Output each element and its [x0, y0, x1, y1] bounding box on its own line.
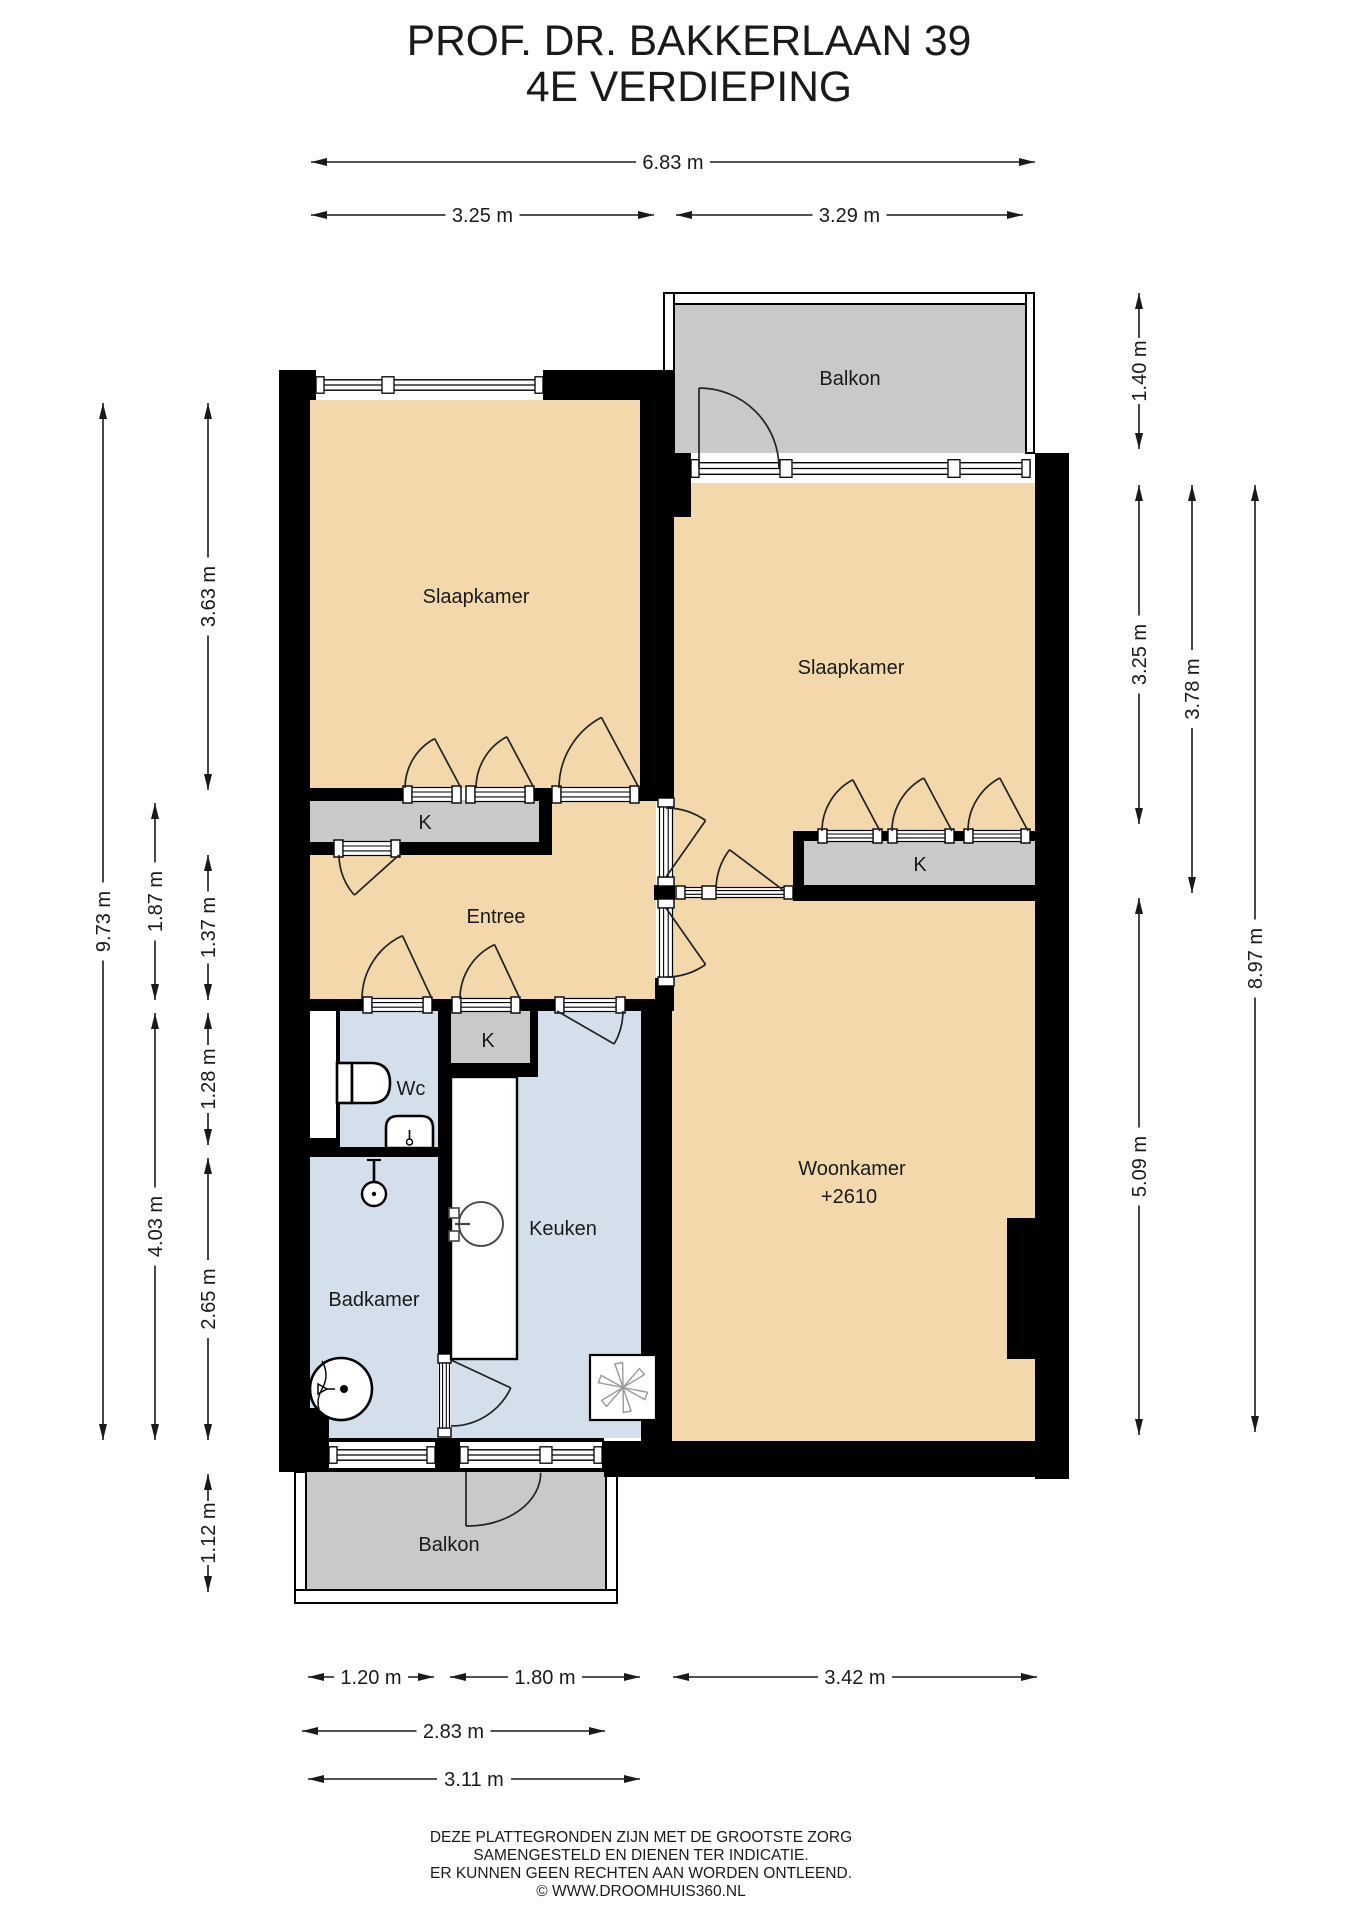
- svg-text:1.12 m: 1.12 m: [198, 1502, 220, 1563]
- svg-text:SAMENGESTELD EN DIENEN TER IND: SAMENGESTELD EN DIENEN TER INDICATIE.: [473, 1847, 808, 1864]
- svg-text:Entree: Entree: [467, 906, 526, 928]
- svg-text:Slaapkamer: Slaapkamer: [423, 586, 530, 608]
- svg-text:4.03 m: 4.03 m: [145, 1196, 167, 1257]
- svg-text:1.80 m: 1.80 m: [514, 1667, 575, 1689]
- svg-text:ER KUNNEN GEEN RECHTEN AAN WOR: ER KUNNEN GEEN RECHTEN AAN WORDEN ONTLEE…: [430, 1865, 852, 1882]
- svg-text:1.87 m: 1.87 m: [145, 871, 167, 932]
- svg-text:2.83 m: 2.83 m: [423, 1721, 484, 1743]
- svg-text:3.11 m: 3.11 m: [444, 1769, 504, 1791]
- svg-text:Badkamer: Badkamer: [328, 1289, 419, 1311]
- svg-text:4E VERDIEPING: 4E VERDIEPING: [526, 64, 852, 111]
- svg-text:6.83 m: 6.83 m: [642, 152, 703, 174]
- svg-text:K: K: [418, 812, 432, 834]
- svg-text:Wc: Wc: [397, 1078, 426, 1100]
- svg-text:3.63 m: 3.63 m: [198, 566, 220, 627]
- svg-text:K: K: [481, 1030, 495, 1052]
- svg-text:5.09 m: 5.09 m: [1129, 1136, 1151, 1197]
- svg-text:Balkon: Balkon: [819, 368, 880, 390]
- svg-text:Slaapkamer: Slaapkamer: [798, 657, 905, 679]
- svg-text:Keuken: Keuken: [529, 1218, 597, 1240]
- svg-text:Balkon: Balkon: [418, 1534, 479, 1556]
- svg-text:K: K: [913, 854, 927, 876]
- svg-text:+2610: +2610: [821, 1186, 877, 1208]
- svg-text:© WWW.DROOMHUIS360.NL: © WWW.DROOMHUIS360.NL: [536, 1883, 746, 1900]
- svg-text:3.25 m: 3.25 m: [1129, 624, 1151, 685]
- svg-text:PROF. DR. BAKKERLAAN 39: PROF. DR. BAKKERLAAN 39: [407, 18, 972, 65]
- svg-text:Woonkamer: Woonkamer: [798, 1158, 906, 1180]
- svg-text:1.28 m: 1.28 m: [198, 1048, 220, 1109]
- svg-text:3.25 m: 3.25 m: [452, 205, 513, 227]
- svg-text:1.20 m: 1.20 m: [340, 1667, 401, 1689]
- svg-text:3.78 m: 3.78 m: [1182, 658, 1204, 719]
- svg-text:8.97 m: 8.97 m: [1245, 928, 1267, 989]
- svg-text:9.73 m: 9.73 m: [93, 891, 115, 952]
- svg-text:3.29 m: 3.29 m: [819, 205, 880, 227]
- svg-text:1.37 m: 1.37 m: [198, 897, 220, 958]
- svg-text:2.65 m: 2.65 m: [198, 1268, 220, 1329]
- svg-text:DEZE PLATTEGRONDEN ZIJN MET DE: DEZE PLATTEGRONDEN ZIJN MET DE GROOTSTE …: [430, 1829, 852, 1846]
- svg-text:3.42 m: 3.42 m: [824, 1667, 885, 1689]
- svg-text:1.40 m: 1.40 m: [1129, 340, 1151, 401]
